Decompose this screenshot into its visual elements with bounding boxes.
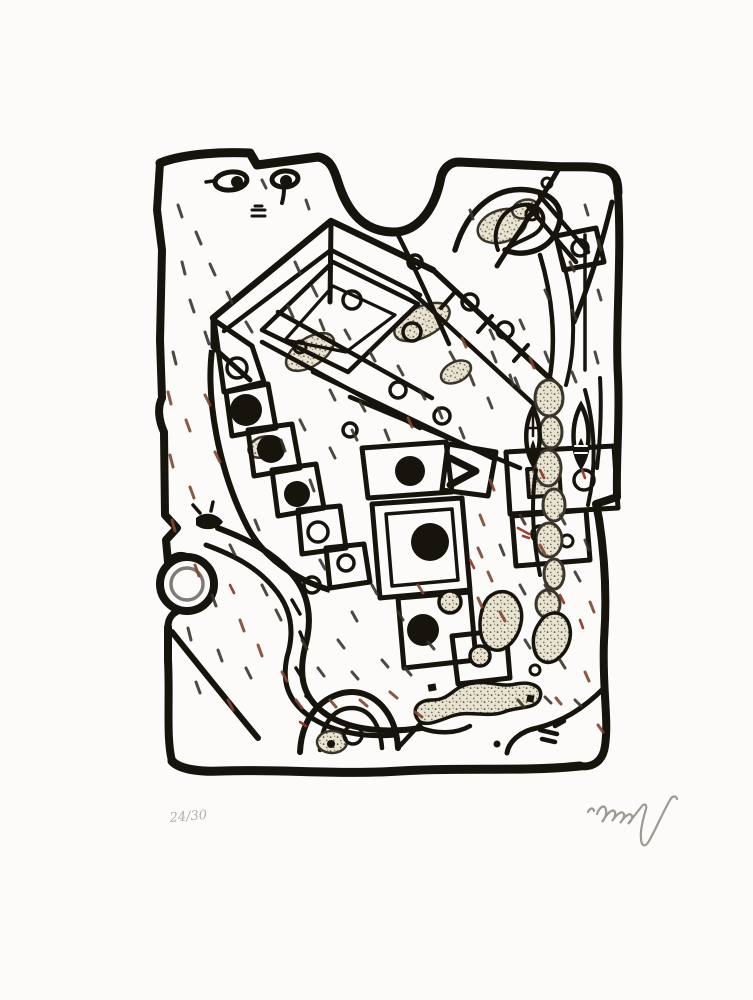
- right-pupil: [280, 175, 292, 187]
- paper-background: [0, 0, 753, 1000]
- scanned-art-page: 24/30: [0, 0, 753, 1000]
- left-pupil: [231, 176, 243, 188]
